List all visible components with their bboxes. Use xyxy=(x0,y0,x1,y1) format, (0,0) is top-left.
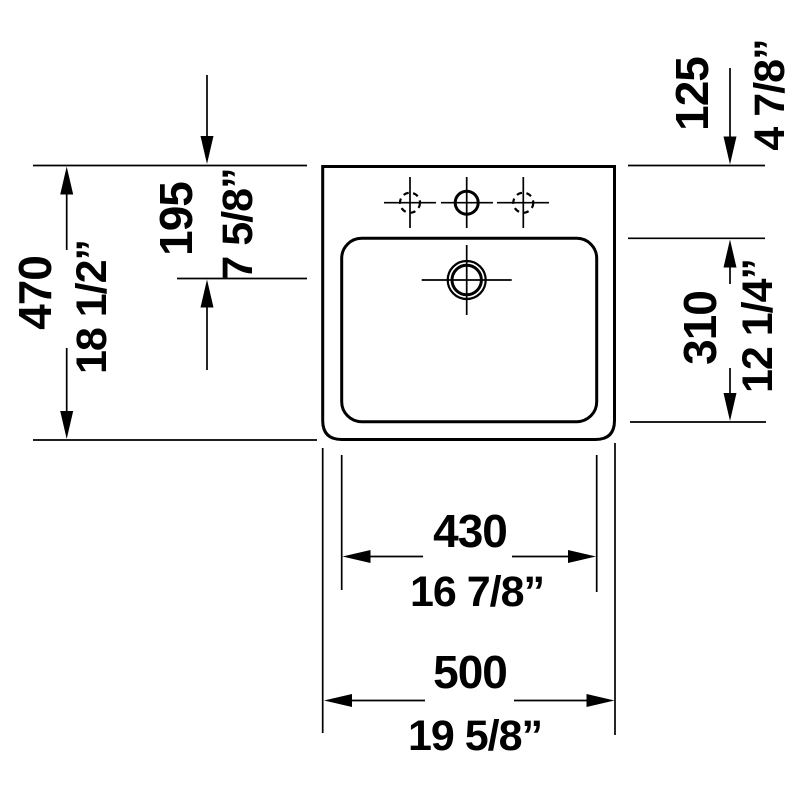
sink-outer-outline xyxy=(323,167,615,440)
arrow-down-icon xyxy=(724,137,737,165)
dimension-rear-ledge: 125 4 7/8” xyxy=(666,39,794,164)
arrow-down-icon xyxy=(201,136,214,164)
dim-label-mm: 470 xyxy=(9,256,61,330)
dimension-basin-depth: 310 12 1/4” xyxy=(674,240,782,422)
extension-lines-group xyxy=(33,166,766,736)
arrow-left-icon xyxy=(324,694,352,707)
faucet-holes-group xyxy=(384,177,549,228)
arrow-down-icon xyxy=(724,393,737,421)
dim-label-mm: 310 xyxy=(674,291,726,365)
dimension-basin-width: 430 16 7/8” xyxy=(343,505,597,616)
arrow-right-icon xyxy=(568,550,596,563)
arrow-up-icon xyxy=(201,280,214,308)
dim-label-mm: 125 xyxy=(666,57,718,131)
washbasin-drawing: 470 18 1/2” 195 7 5/8” 125 4 7/8” 310 12… xyxy=(0,0,800,800)
dimension-overall-width: 500 19 5/8” xyxy=(324,646,615,760)
dimension-faucet-line: 195 7 5/8” xyxy=(150,75,262,370)
arrow-right-icon xyxy=(587,694,615,707)
dim-label-inches: 16 7/8” xyxy=(410,568,544,616)
arrow-left-icon xyxy=(343,550,371,563)
arrow-up-icon xyxy=(60,167,73,195)
dim-label-inches: 4 7/8” xyxy=(746,39,794,150)
dim-label-inches: 18 1/2” xyxy=(68,240,116,374)
dim-label-mm: 500 xyxy=(433,646,507,698)
technical-drawing-page: 470 18 1/2” 195 7 5/8” 125 4 7/8” 310 12… xyxy=(0,0,800,800)
sink-outline-group xyxy=(323,167,615,440)
dim-label-mm: 430 xyxy=(433,505,507,557)
overflow-hole-group xyxy=(422,245,512,315)
dim-label-mm: 195 xyxy=(150,182,202,256)
arrow-down-icon xyxy=(60,411,73,439)
dimension-overall-depth: 470 18 1/2” xyxy=(9,167,116,440)
dim-label-inches: 19 5/8” xyxy=(408,712,542,760)
dim-label-inches: 7 5/8” xyxy=(214,168,262,279)
dim-label-inches: 12 1/4” xyxy=(734,259,782,393)
